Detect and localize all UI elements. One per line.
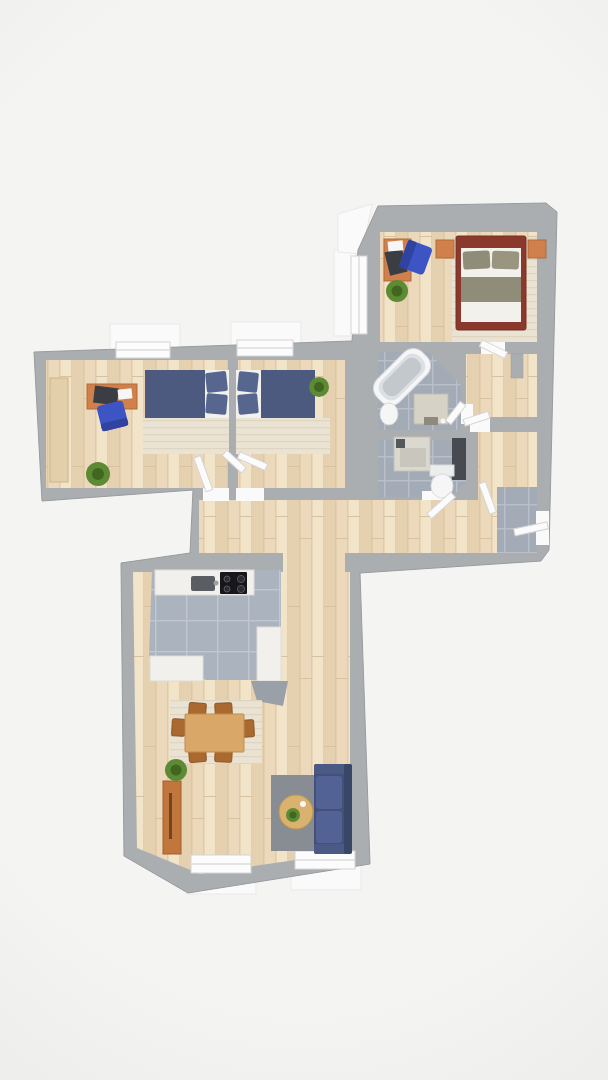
sofa-armrest-top: [314, 764, 346, 774]
wall-corridor-pier: [511, 354, 523, 378]
dining-table: [185, 714, 244, 752]
doorway-bedroom-middle: [236, 488, 264, 501]
rug-left-bedroom: [143, 418, 229, 454]
cooktop-burner-1: [224, 576, 230, 582]
plant-master-core: [392, 286, 403, 297]
bed-middle-pillow-top: [237, 371, 259, 393]
kitchen-sink: [191, 576, 215, 591]
plant-sideboard-core: [171, 765, 182, 776]
floor-entry: [497, 487, 537, 553]
cabinet-bathroom-tray: [424, 417, 438, 425]
washing-machine-panel: [396, 439, 405, 448]
nightstand-left: [436, 240, 454, 258]
apartment-floor-plan: [0, 0, 608, 1080]
coffee-table-cup: [300, 801, 306, 807]
bed-left-pillow-top: [205, 371, 228, 393]
wardrobe-left-bedroom: [50, 378, 68, 482]
floor-hallway: [199, 500, 497, 553]
sofa-armrest-bottom: [314, 844, 346, 854]
rug-middle-bedroom: [236, 418, 330, 454]
bed-middle-pillow-bottom: [237, 393, 259, 415]
sink-bathroom: [380, 403, 398, 425]
bed-left-pillow-bottom: [205, 393, 228, 415]
sofa-cushion-top: [316, 776, 342, 809]
coffee-table-plant-core: [290, 812, 297, 819]
floor-plan-shapes: [34, 203, 557, 894]
paper-master: [388, 240, 404, 251]
plant-middle-bedroom-core: [314, 382, 324, 392]
bed-master-pillow-left: [463, 250, 491, 269]
dining-chair-left: [172, 719, 186, 737]
cooktop-burner-2: [237, 575, 244, 582]
floor-corridor-upper: [466, 354, 537, 417]
bed-left-duvet: [145, 370, 205, 418]
kitchen-island: [150, 656, 203, 681]
nightstand-right: [528, 240, 546, 258]
kitchen-faucet: [214, 581, 219, 586]
sofa-backrest: [344, 764, 352, 854]
cabinet-bathroom-item: [441, 419, 446, 424]
sideboard-handle: [169, 793, 172, 839]
paper-left-bedroom: [118, 388, 133, 399]
washing-machine-door: [400, 448, 426, 467]
sofa-cushion-bottom: [316, 811, 342, 843]
plant-left-bedroom-core: [92, 468, 104, 480]
bed-master-pillow-right: [492, 251, 520, 270]
kitchen-counter-right: [257, 627, 281, 681]
bed-middle-duvet: [261, 370, 315, 418]
floor-plan-canvas: [0, 0, 608, 1080]
cooktop-burner-4: [237, 585, 244, 592]
bed-master-blanket: [461, 277, 521, 302]
cooktop-burner-3: [224, 586, 230, 592]
